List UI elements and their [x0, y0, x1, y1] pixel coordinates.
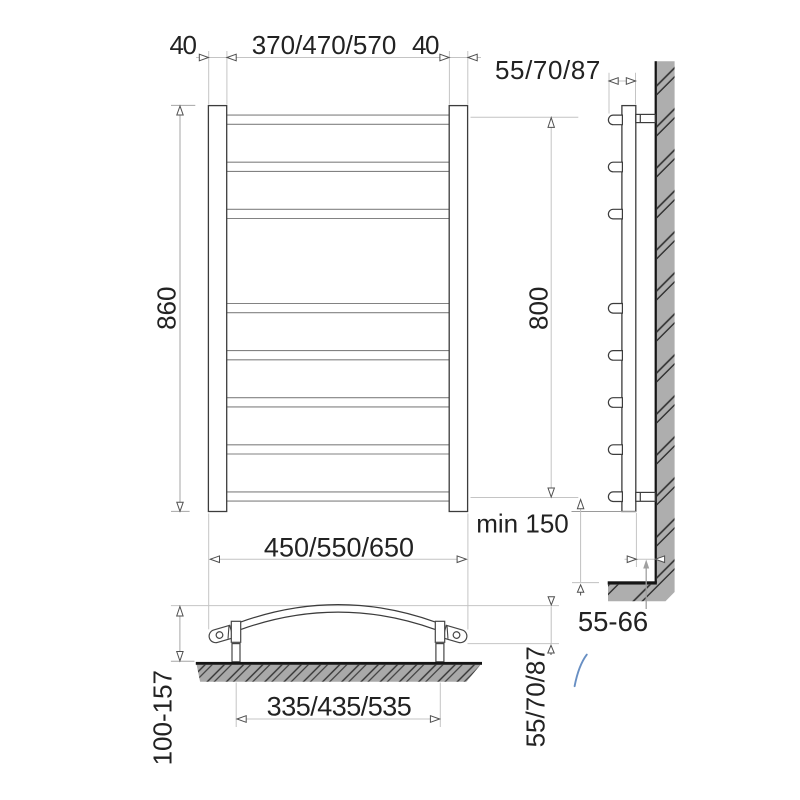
- svg-text:40: 40: [170, 30, 197, 60]
- svg-text:min 150: min 150: [476, 508, 569, 538]
- svg-text:55/70/87: 55/70/87: [521, 646, 551, 747]
- svg-text:55/70/87: 55/70/87: [495, 55, 601, 85]
- svg-text:335/435/535: 335/435/535: [267, 691, 412, 721]
- svg-text:100-157: 100-157: [147, 670, 177, 765]
- svg-text:370/470/570: 370/470/570: [252, 30, 397, 60]
- svg-text:40: 40: [412, 30, 439, 60]
- svg-text:800: 800: [524, 287, 554, 330]
- svg-text:450/550/650: 450/550/650: [264, 532, 414, 562]
- svg-text:860: 860: [152, 287, 182, 330]
- svg-text:55-66: 55-66: [578, 606, 648, 637]
